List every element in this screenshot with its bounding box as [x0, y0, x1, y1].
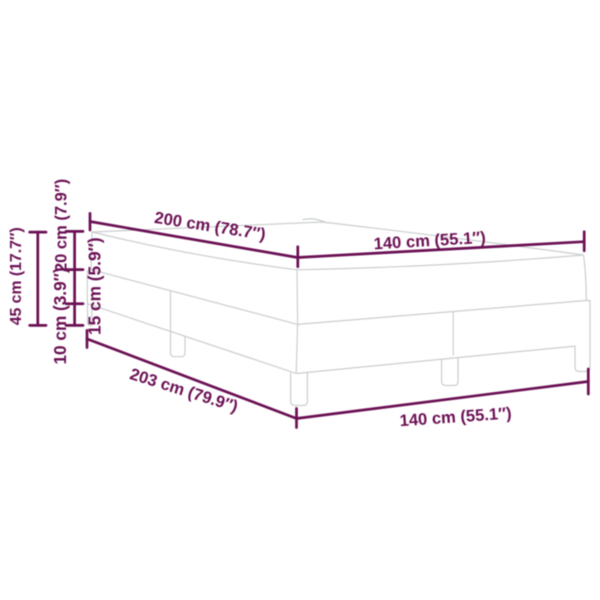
svg-text:140 cm (55.1″): 140 cm (55.1″) [373, 228, 486, 254]
svg-text:20 cm (7.9″): 20 cm (7.9″) [52, 179, 70, 272]
svg-text:140 cm (55.1″): 140 cm (55.1″) [399, 404, 512, 431]
svg-text:10 cm (3.9″): 10 cm (3.9″) [50, 267, 70, 364]
svg-text:45 cm (17.7″): 45 cm (17.7″) [8, 227, 25, 325]
svg-text:15 cm (5.9″): 15 cm (5.9″) [85, 237, 105, 335]
svg-text:200 cm (78.7″): 200 cm (78.7″) [153, 208, 267, 244]
